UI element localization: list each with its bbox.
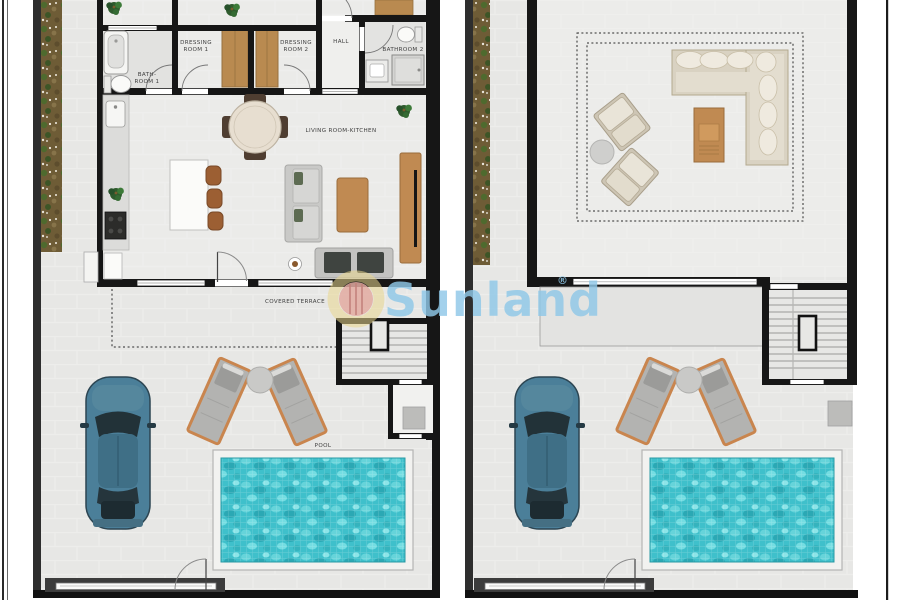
plot-cut-line-right bbox=[886, 0, 888, 600]
label-dressing1-2: ROOM 1 bbox=[184, 47, 209, 53]
kitchen bbox=[103, 95, 129, 250]
coffee-table bbox=[337, 178, 368, 232]
staircase bbox=[762, 283, 857, 385]
watermark-brand: Sunland bbox=[384, 273, 602, 327]
wardrobe-bedroom bbox=[375, 0, 413, 15]
doormat bbox=[403, 407, 425, 429]
label-living-room: LIVING ROOM-KITCHEN bbox=[306, 128, 377, 134]
garden-strip bbox=[472, 0, 490, 265]
plot-wall-left bbox=[33, 0, 41, 598]
garden-strip bbox=[41, 0, 62, 252]
tv-unit bbox=[400, 153, 421, 263]
floor-plan-canvas: BATH- ROOM 1 DRESSING ROOM 1 DRESSING RO… bbox=[0, 0, 900, 600]
label-pool: POOL bbox=[315, 443, 332, 449]
label-dressing1: DRESSING bbox=[180, 40, 212, 46]
staircase bbox=[336, 318, 433, 385]
label-dressing2: DRESSING bbox=[280, 40, 312, 46]
label-bathroom1-2: ROOM 1 bbox=[135, 79, 160, 85]
label-dressing2-2: ROOM 2 bbox=[284, 47, 309, 53]
entry-porch bbox=[388, 385, 433, 439]
label-bathroom1: BATH- bbox=[138, 72, 157, 78]
watermark-registered: ® bbox=[557, 274, 568, 287]
coffee-table-upper bbox=[694, 108, 724, 162]
plot-cut-line-left2 bbox=[7, 0, 8, 600]
floorplan-sheet: BATH- ROOM 1 DRESSING ROOM 1 DRESSING RO… bbox=[0, 0, 900, 600]
label-hall: HALL bbox=[333, 39, 349, 45]
bathroom1-fixtures bbox=[104, 31, 131, 93]
label-covered-terrace: COVERED TERRACE bbox=[265, 299, 325, 305]
doormat bbox=[828, 401, 852, 426]
round-table bbox=[590, 140, 614, 164]
tv bbox=[414, 170, 417, 247]
label-bathroom2: BATHROOM 2 bbox=[382, 47, 423, 53]
plot-cut-line-left bbox=[2, 0, 4, 600]
kitchen-island bbox=[170, 160, 223, 230]
hall-floor bbox=[322, 15, 359, 88]
